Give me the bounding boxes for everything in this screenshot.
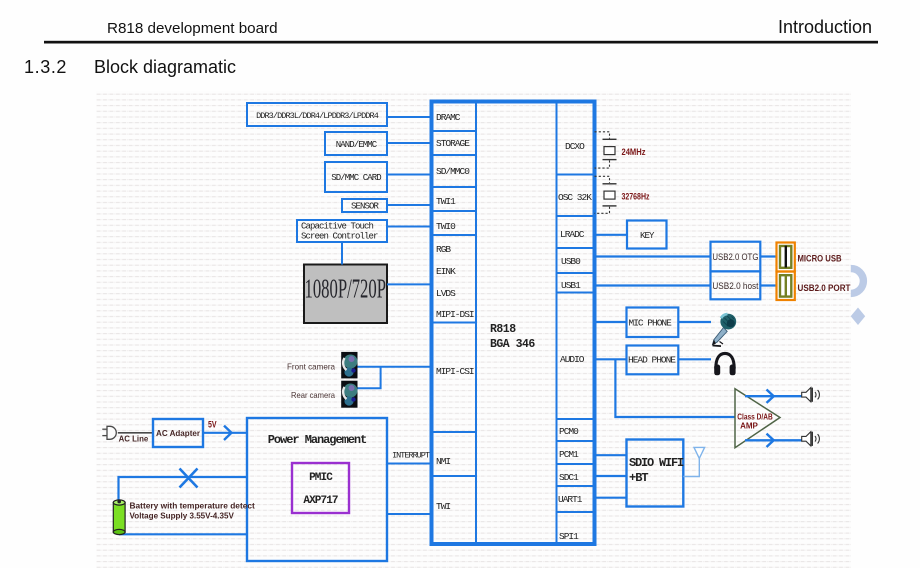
svg-text:1080P/720P: 1080P/720P xyxy=(305,274,387,304)
svg-text:UART1: UART1 xyxy=(558,494,583,505)
svg-text:MICRO USB: MICRO USB xyxy=(798,254,842,264)
svg-text:AUDIO: AUDIO xyxy=(560,354,585,365)
svg-text:EINK: EINK xyxy=(436,266,456,277)
svg-text:Introduction: Introduction xyxy=(778,17,872,37)
svg-text:USB0: USB0 xyxy=(561,256,581,267)
svg-text:OSC 32K: OSC 32K xyxy=(558,192,592,203)
svg-text:Class D/AB: Class D/AB xyxy=(737,413,773,422)
svg-text:MIPI-DSI: MIPI-DSI xyxy=(436,309,474,320)
svg-text:Capacitive Touch: Capacitive Touch xyxy=(301,222,374,232)
svg-text:NMI: NMI xyxy=(436,456,450,467)
svg-text:+BT: +BT xyxy=(629,471,648,485)
svg-text:USB2.0 PORT: USB2.0 PORT xyxy=(798,283,851,293)
svg-text:KEY: KEY xyxy=(640,231,655,241)
svg-text:TWI0: TWI0 xyxy=(436,221,456,232)
svg-text:HEAD PHONE: HEAD PHONE xyxy=(628,355,676,366)
svg-text:AXP717: AXP717 xyxy=(303,495,338,507)
svg-text:PCM1: PCM1 xyxy=(559,449,579,460)
svg-text:STORAGE: STORAGE xyxy=(436,138,470,149)
svg-text:NAND/EMMC: NAND/EMMC xyxy=(336,140,378,150)
svg-text:SD/MMC CARD: SD/MMC CARD xyxy=(331,173,381,183)
svg-text:Screen Controller: Screen Controller xyxy=(301,232,378,242)
svg-text:5V: 5V xyxy=(208,420,217,430)
svg-text:BGA 346: BGA 346 xyxy=(490,338,535,351)
svg-text:R818: R818 xyxy=(490,323,516,336)
svg-text:TWI1: TWI1 xyxy=(436,196,456,207)
svg-text:USB2.0 OTG: USB2.0 OTG xyxy=(712,252,758,262)
svg-text:SD/MMC0: SD/MMC0 xyxy=(436,166,470,177)
svg-text:AMP: AMP xyxy=(740,422,758,431)
svg-text:PCM0: PCM0 xyxy=(559,426,579,437)
svg-text:SDC1: SDC1 xyxy=(559,472,579,483)
svg-text:AC Line: AC Line xyxy=(119,433,149,443)
svg-text:SPI1: SPI1 xyxy=(559,531,579,542)
svg-text:Rear camera: Rear camera xyxy=(291,390,335,400)
svg-text:R818 development board: R818 development board xyxy=(107,20,278,37)
svg-text:USB1: USB1 xyxy=(561,280,581,291)
svg-text:MIC PHONE: MIC PHONE xyxy=(629,318,673,329)
svg-text:1.3.2: 1.3.2 xyxy=(24,57,67,77)
svg-text:DDR3/DDR3L/DDR4/LPDDR3/LPDDR4: DDR3/DDR3L/DDR4/LPDDR3/LPDDR4 xyxy=(256,111,379,121)
svg-text:MIPI-CSI: MIPI-CSI xyxy=(436,366,474,377)
svg-text:PMIC: PMIC xyxy=(309,472,333,484)
svg-text:DCXO: DCXO xyxy=(565,141,585,152)
svg-text:USB2.0 host: USB2.0 host xyxy=(712,281,758,291)
svg-text:SENSOR: SENSOR xyxy=(351,202,380,212)
svg-text:AC Adapter: AC Adapter xyxy=(156,428,201,438)
svg-text:Block diagramatic: Block diagramatic xyxy=(94,57,236,77)
svg-text:INTERRUPT: INTERRUPT xyxy=(392,451,430,461)
svg-text:LRADC: LRADC xyxy=(560,229,585,240)
svg-text:24MHz: 24MHz xyxy=(622,147,646,157)
svg-text:Front camera: Front camera xyxy=(287,362,335,372)
svg-text:DRAMC: DRAMC xyxy=(436,112,461,123)
svg-text:TWI: TWI xyxy=(436,501,450,512)
svg-text:32768Hz: 32768Hz xyxy=(622,192,650,202)
svg-text:LVDS: LVDS xyxy=(436,288,456,299)
svg-text:Voltage Supply 3.55V-4.35V: Voltage Supply 3.55V-4.35V xyxy=(130,511,235,521)
svg-text:SDIO WIFI: SDIO WIFI xyxy=(629,456,684,470)
svg-text:Power Management: Power Management xyxy=(268,433,367,447)
svg-text:Battery with temperature detec: Battery with temperature detect xyxy=(130,501,255,511)
svg-text:RGB: RGB xyxy=(436,244,451,255)
